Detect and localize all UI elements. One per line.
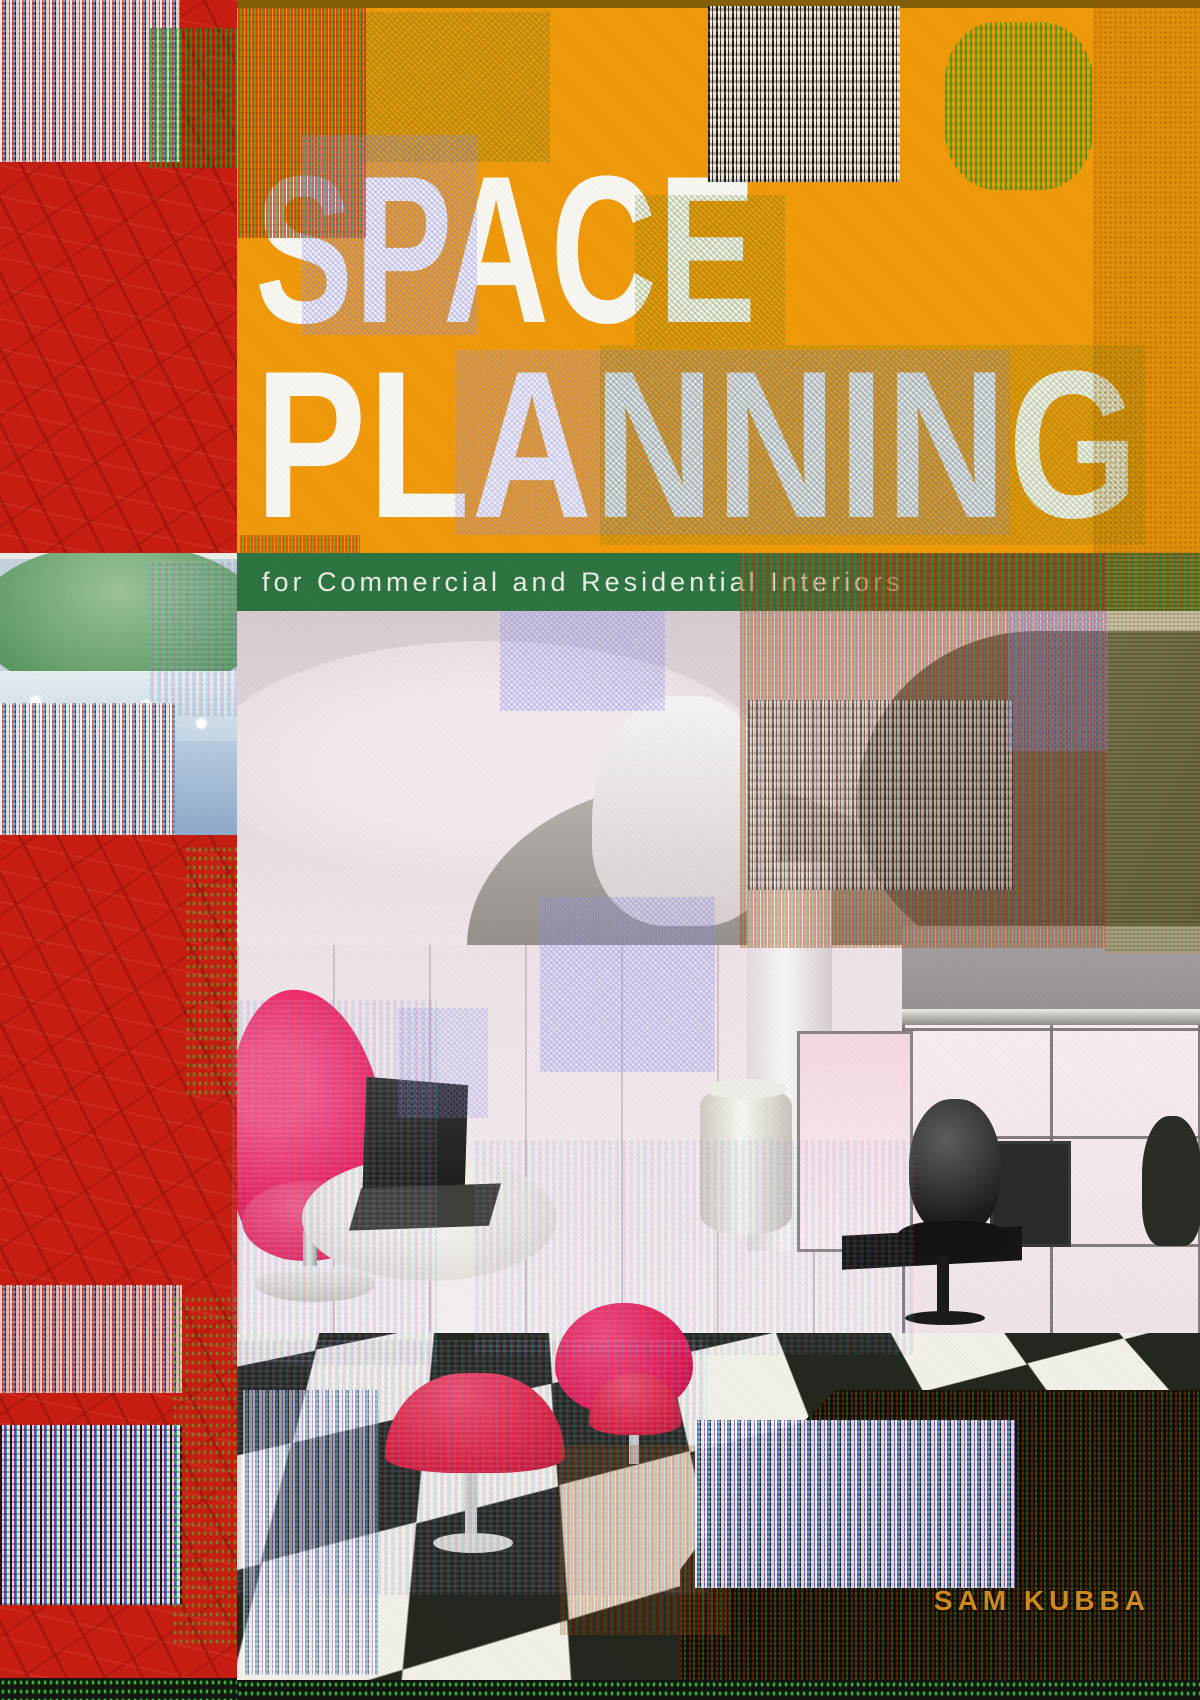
author-name: SAM KUBBA bbox=[934, 1585, 1150, 1617]
book-subtitle: for Commercial and Residential Interiors bbox=[262, 567, 904, 598]
egg-chair-base bbox=[255, 1266, 375, 1302]
laptop-screen bbox=[362, 1077, 468, 1197]
office-chair-post bbox=[937, 1256, 949, 1316]
stool-base bbox=[433, 1533, 513, 1553]
ceiling-lights bbox=[0, 671, 237, 746]
laptop-keyboard bbox=[349, 1183, 501, 1230]
office-photo: SAM KUBBA bbox=[237, 611, 1200, 1700]
lobby-lower bbox=[0, 741, 237, 835]
left-map-column bbox=[0, 0, 237, 1700]
office-chair-back bbox=[909, 1099, 1001, 1234]
bottom-edge-strip bbox=[0, 1678, 237, 1700]
glitch-block bbox=[150, 28, 237, 168]
backlit-panel bbox=[797, 1031, 913, 1252]
ceiling-dark-panel bbox=[857, 631, 1200, 961]
book-cover: SPACE PLANNING for Commercial and Reside… bbox=[0, 0, 1200, 1700]
office-chair-base bbox=[905, 1311, 985, 1325]
book-title-line1: SPACE bbox=[255, 145, 758, 355]
partition-rail bbox=[902, 1009, 1200, 1025]
second-chair bbox=[1142, 1116, 1200, 1246]
bottom-edge-strip bbox=[237, 1680, 1200, 1700]
book-title-line2: PLANNING bbox=[255, 340, 1140, 550]
glitch-block bbox=[0, 1425, 182, 1605]
white-bin bbox=[700, 1085, 792, 1235]
glitch-block bbox=[185, 845, 237, 1095]
map-texture bbox=[0, 0, 237, 1700]
stool-stem bbox=[465, 1466, 477, 1541]
white-bin-lid bbox=[705, 1079, 787, 1099]
lobby-photo-inset bbox=[0, 553, 237, 835]
glitch-block bbox=[172, 1295, 237, 1645]
glitch-block bbox=[0, 0, 180, 162]
top-edge-strip bbox=[237, 0, 1200, 8]
glitch-block bbox=[0, 1285, 182, 1393]
office-chair-seat bbox=[897, 1221, 1009, 1259]
